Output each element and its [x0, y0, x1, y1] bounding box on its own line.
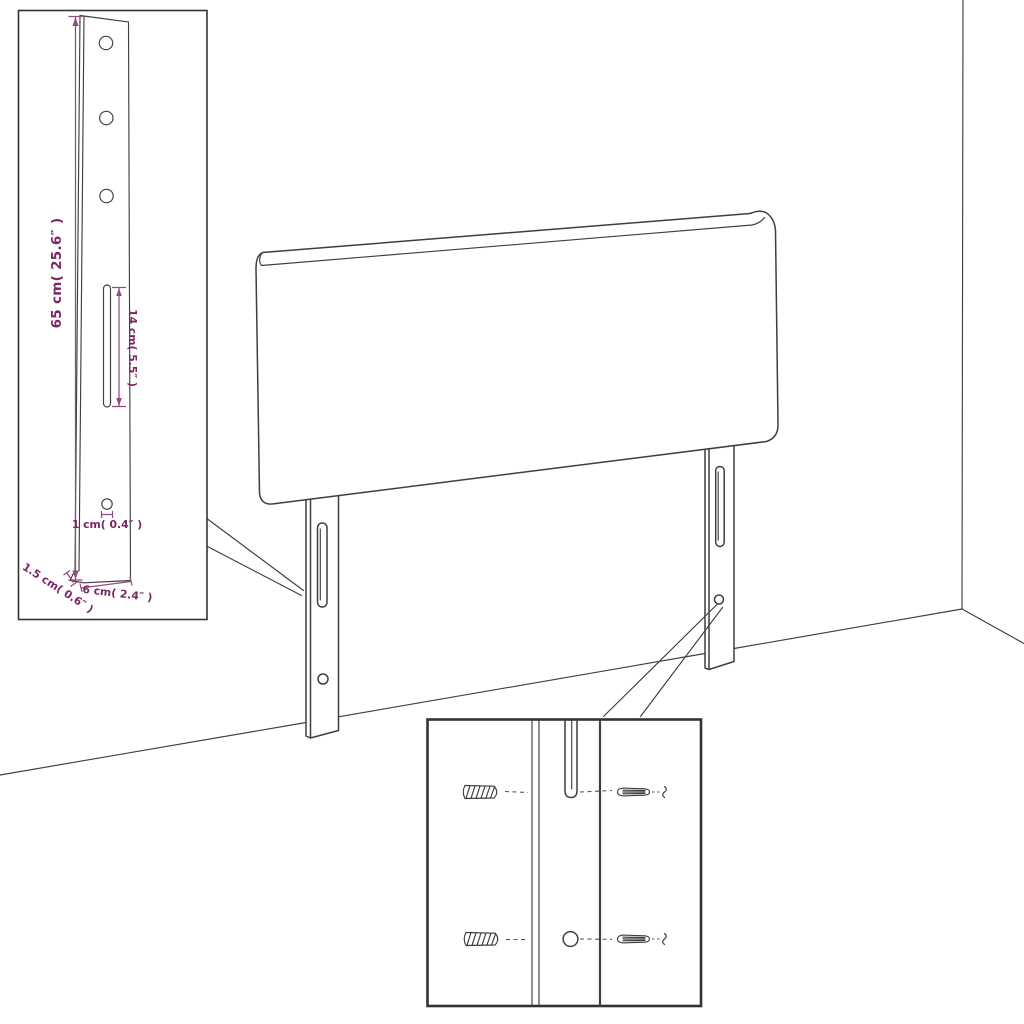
- left-leg-hole: [318, 674, 328, 684]
- left-leg-slot: [318, 523, 328, 607]
- hardware-detail-inset: [428, 720, 702, 1007]
- callout-line: [208, 519, 304, 591]
- right-leg: [705, 446, 734, 670]
- right-leg-hole: [715, 595, 724, 604]
- wall-corner-line: [962, 0, 963, 609]
- callout-line: [604, 604, 718, 717]
- left-leg-outline: [306, 496, 339, 738]
- right-leg-slot: [716, 467, 725, 547]
- left-leg: [306, 496, 339, 738]
- right-leg-outline: [705, 446, 734, 670]
- leg-inset-callout: [208, 519, 304, 596]
- dimension-label-slot-length: 14 cm( 5.5″ ): [126, 309, 139, 387]
- diagram-canvas: 65 cm( 25.6″ ) 14 cm( 5.5″ ) 1 cm( 0.4″ …: [0, 0, 1024, 1024]
- leg-detail-inset: 65 cm( 25.6″ ) 14 cm( 5.5″ ) 1 cm( 0.4″ …: [19, 11, 208, 620]
- headboard-panel: [256, 211, 778, 504]
- dimension-label-hole-diameter: 1 cm( 0.4″ ): [72, 518, 142, 531]
- panel-outline: [256, 211, 778, 504]
- dimension-label-leg-height: 65 cm( 25.6″ ): [49, 218, 65, 329]
- headboard-dimension-diagram: 65 cm( 25.6″ ) 14 cm( 5.5″ ) 1 cm( 0.4″ …: [0, 0, 1024, 1024]
